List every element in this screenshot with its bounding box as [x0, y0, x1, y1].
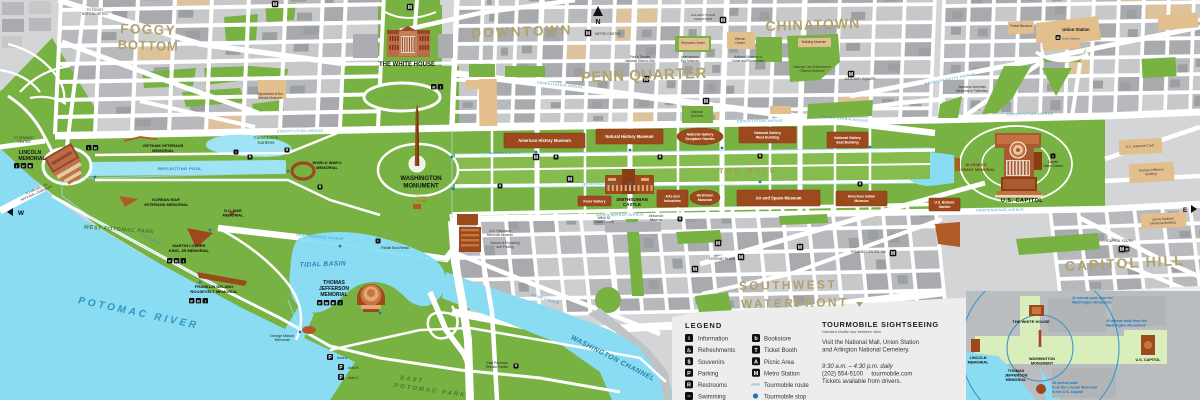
svg-text:i: i	[340, 301, 341, 305]
svg-text:MEMORIAL: MEMORIAL	[152, 148, 174, 153]
svg-text:M: M	[693, 267, 697, 273]
svg-text:M: M	[586, 31, 590, 37]
svg-text:LINCOLN: LINCOLN	[970, 356, 987, 360]
svg-text:M: M	[568, 177, 572, 183]
svg-text:R: R	[197, 299, 200, 303]
svg-text:R: R	[332, 301, 335, 305]
svg-text:CHINATOWN: CHINATOWN	[765, 15, 860, 34]
svg-text:Area A: Area A	[337, 356, 348, 360]
svg-text:Archives: Archives	[691, 114, 704, 118]
svg-text:ULYSSES S: ULYSSES S	[966, 163, 987, 167]
svg-text:THE WHITE HOUSE: THE WHITE HOUSE	[1012, 319, 1050, 324]
svg-text:FOGGY: FOGGY	[120, 21, 176, 38]
svg-text:10 minute walk from the: 10 minute walk from the	[1072, 296, 1113, 300]
svg-text:BOTTOM: BOTTOM	[117, 37, 178, 54]
svg-text:U.S. CAPITOL: U.S. CAPITOL	[1135, 358, 1161, 362]
svg-text:MEMORIAL: MEMORIAL	[223, 214, 244, 218]
svg-text:Freer Gallery: Freer Gallery	[583, 199, 605, 203]
svg-text:Service Center: Service Center	[486, 365, 509, 369]
svg-text:M: M	[1126, 247, 1129, 251]
svg-text:R: R	[94, 146, 97, 150]
svg-text:(202) 554-5100 tourmobile.: (202) 554-5100 tourmobile.com	[822, 372, 912, 378]
svg-text:R: R	[687, 383, 691, 389]
svg-text:MEMORIAL: MEMORIAL	[316, 165, 338, 170]
svg-text:M: M	[754, 371, 759, 377]
svg-text:Washington Monument: Washington Monument	[1072, 301, 1112, 305]
svg-text:TRAINING CENTER SW: TRAINING CENTER SW	[850, 250, 885, 254]
svg-text:Memorial Museum: Memorial Museum	[487, 233, 514, 237]
svg-text:U.S. CAPITOL: U.S. CAPITOL	[1001, 198, 1043, 204]
svg-text:Garden: Garden	[939, 205, 951, 209]
svg-text:CONSTITUTION AVENUE: CONSTITUTION AVENUE	[1007, 112, 1054, 117]
svg-text:CASTLE: CASTLE	[623, 202, 641, 207]
svg-text:Parking: Parking	[698, 371, 718, 377]
svg-text:Theater: Theater	[416, 199, 428, 203]
svg-text:D.C. WAR: D.C. WAR	[224, 209, 242, 213]
svg-text:METRO CENTER: METRO CENTER	[595, 32, 621, 36]
svg-text:9:30 a.m. – 4:30 p.m. daily: 9:30 a.m. – 4:30 p.m. daily	[822, 364, 894, 370]
svg-text:Memorial: Memorial	[275, 338, 290, 342]
svg-text:E: E	[1183, 207, 1188, 214]
svg-text:Postal Museum: Postal Museum	[1010, 24, 1032, 28]
svg-text:P: P	[22, 164, 25, 168]
svg-text:INDEPENDENCE AVENUE: INDEPENDENCE AVENUE	[976, 208, 1024, 213]
svg-text:TOURMOBILE SIGHTSEEING: TOURMOBILE SIGHTSEEING	[822, 320, 939, 329]
svg-text:M: M	[273, 2, 277, 8]
svg-text:P: P	[318, 301, 321, 305]
svg-text:Museum: Museum	[698, 198, 712, 202]
svg-text:West Building: West Building	[756, 135, 779, 139]
svg-text:i: i	[1053, 154, 1054, 158]
svg-text:MEMORIAL: MEMORIAL	[320, 292, 347, 298]
svg-text:MEMORIAL: MEMORIAL	[968, 361, 989, 365]
svg-text:M: M	[704, 99, 708, 105]
svg-text:A: A	[754, 359, 758, 365]
svg-text:to the U.S. Capitol: to the U.S. Capitol	[1052, 390, 1083, 394]
svg-text:45 minute walk: 45 minute walk	[1052, 381, 1078, 385]
svg-text:East Building: East Building	[836, 140, 858, 144]
svg-text:BOTTOM METRO: BOTTOM METRO	[82, 12, 108, 16]
svg-text:MEMORIAL: MEMORIAL	[1006, 378, 1027, 382]
svg-text:Union Station: Union Station	[1062, 37, 1080, 41]
svg-text:CONSTITUTION AVENUE: CONSTITUTION AVENUE	[737, 119, 784, 124]
svg-text:M: M	[325, 301, 328, 305]
svg-text:Restrooms: Restrooms	[698, 383, 727, 389]
svg-text:Tourmobile stop: Tourmobile stop	[764, 395, 807, 400]
svg-text:WASHINGTON: WASHINGTON	[1029, 357, 1055, 361]
svg-text:MONUMENT: MONUMENT	[1031, 362, 1054, 366]
svg-text:INDEPENDENCE AVENUE: INDEPENDENCE AVENUE	[596, 213, 644, 218]
svg-text:CHINATOWN: CHINATOWN	[694, 17, 712, 21]
svg-text:M: M	[739, 255, 743, 261]
svg-text:L’ENFANT PLAZA: L’ENFANT PLAZA	[709, 257, 736, 261]
svg-text:M: M	[716, 241, 720, 247]
svg-text:GRANT MEMORIAL: GRANT MEMORIAL	[960, 168, 996, 172]
svg-text:American History Museum: American History Museum	[518, 138, 571, 143]
svg-text:ROOSEVELT MEMORIAL: ROOSEVELT MEMORIAL	[190, 289, 238, 294]
svg-text:THE WHITE HOUSE: THE WHITE HOUSE	[379, 62, 435, 68]
svg-text:~: ~	[687, 394, 690, 400]
svg-text:Center: Center	[735, 41, 746, 45]
svg-text:Narrated shuttle tour between: Narrated shuttle tour between sites	[822, 330, 881, 334]
svg-text:i: i	[16, 164, 17, 168]
svg-text:i: i	[440, 85, 441, 89]
svg-text:WASHINGTON: WASHINGTON	[400, 176, 441, 182]
svg-text:and Printing: and Printing	[496, 245, 513, 249]
svg-text:i: i	[236, 150, 237, 154]
svg-text:JEFFERSON: JEFFERSON	[1005, 374, 1028, 378]
svg-text:M: M	[798, 245, 802, 251]
svg-text:Carter Gallery: Carter Gallery	[594, 220, 614, 224]
svg-text:Visitor Center: Visitor Center	[1043, 164, 1064, 168]
svg-text:VETERANS MEMORIAL: VETERANS MEMORIAL	[144, 202, 189, 207]
svg-text:National Historic Site: National Historic Site	[625, 59, 655, 63]
svg-text:M: M	[891, 251, 895, 257]
svg-text:M: M	[721, 18, 725, 24]
svg-text:R: R	[29, 164, 32, 168]
svg-text:Paddle Boat Rental: Paddle Boat Rental	[381, 246, 409, 250]
svg-text:THE MALL: THE MALL	[719, 165, 777, 175]
svg-text:Memorial to Patriotism: Memorial to Patriotism	[956, 89, 988, 93]
svg-text:i: i	[88, 146, 89, 150]
svg-text:M: M	[534, 155, 538, 161]
svg-text:REFLECTING POOL: REFLECTING POOL	[158, 166, 202, 171]
svg-text:M: M	[1057, 36, 1060, 40]
svg-text:and Arlington National Cemeter: and Arlington National Cemetery.	[822, 348, 910, 354]
svg-text:Metro Station: Metro Station	[764, 371, 800, 377]
svg-text:Museum: Museum	[854, 199, 868, 203]
svg-text:THOMAS: THOMAS	[1008, 369, 1025, 373]
svg-text:LEGEND: LEGEND	[685, 321, 722, 330]
svg-text:R: R	[432, 85, 435, 89]
svg-text:♨: ♨	[687, 347, 692, 354]
svg-text:Air and Space Museum: Air and Space Museum	[755, 196, 801, 201]
svg-text:MADISON DRIVE: MADISON DRIVE	[489, 151, 521, 156]
svg-text:Reynolds Center: Reynolds Center	[681, 41, 706, 45]
svg-text:Bookstore: Bookstore	[764, 337, 792, 343]
svg-text:JUDICIARY SQUARE: JUDICIARY SQUARE	[844, 77, 875, 81]
svg-text:CAPITOL SOUTH: CAPITOL SOUTH	[1107, 239, 1133, 243]
svg-text:Museum: Museum	[650, 218, 663, 222]
svg-text:Industries: Industries	[664, 199, 681, 203]
svg-text:ELLIPSE: ELLIPSE	[385, 94, 419, 101]
svg-text:Ticket Booth: Ticket Booth	[764, 348, 797, 354]
svg-text:Visit the National Mall, Union: Visit the National Mall, Union Station	[822, 340, 919, 346]
svg-text:i: i	[183, 259, 184, 263]
svg-text:20 minute walk from the: 20 minute walk from the	[1106, 319, 1147, 323]
svg-text:MONUMENT: MONUMENT	[403, 184, 439, 190]
svg-text:Area B: Area B	[348, 366, 359, 370]
svg-text:Union Station: Union Station	[1062, 27, 1090, 32]
svg-text:i: i	[205, 299, 206, 303]
svg-text:Information: Information	[698, 337, 728, 343]
svg-text:MEMORIAL: MEMORIAL	[18, 156, 45, 162]
svg-text:M: M	[408, 5, 412, 11]
svg-text:Tourmobile route: Tourmobile route	[764, 383, 809, 389]
svg-text:P: P	[168, 259, 171, 263]
svg-text:Officers Memorial: Officers Memorial	[800, 69, 825, 73]
svg-text:Sculpture Garden: Sculpture Garden	[685, 137, 714, 141]
svg-text:Gardens: Gardens	[258, 140, 276, 145]
svg-text:Washington Monument: Washington Monument	[1106, 324, 1146, 328]
svg-text:CONSTITUTION AVENUE: CONSTITUTION AVENUE	[277, 129, 324, 134]
svg-text:P: P	[687, 371, 691, 377]
svg-text:Building Museum: Building Museum	[802, 40, 827, 44]
svg-text:Crime and Punishment: Crime and Punishment	[732, 59, 765, 63]
svg-text:R: R	[175, 259, 178, 263]
svg-text:JEFFERSON DRIVE: JEFFERSON DRIVE	[582, 182, 619, 187]
svg-text:$: $	[687, 359, 690, 365]
svg-text:SOUTHWEST: SOUTHWEST	[739, 277, 837, 293]
svg-text:Area C: Area C	[348, 376, 359, 380]
svg-text:CENTER: CENTER	[17, 140, 31, 144]
svg-text:Spy Museum: Spy Museum	[681, 59, 700, 63]
svg-text:Tickets available from drivers: Tickets available from drivers.	[822, 379, 901, 385]
svg-text:WATERFRONT: WATERFRONT	[741, 295, 849, 311]
svg-text:W: W	[18, 210, 25, 217]
svg-text:Refreshments: Refreshments	[698, 348, 735, 354]
svg-text:from the Lincoln Memorial: from the Lincoln Memorial	[1052, 386, 1097, 390]
svg-text:N: N	[595, 19, 600, 26]
svg-text:Building: Building	[1145, 172, 1157, 177]
svg-text:P: P	[190, 299, 193, 303]
svg-text:Swimming: Swimming	[698, 395, 726, 400]
svg-text:Interior Museum: Interior Museum	[258, 96, 281, 100]
svg-text:Picnic Area: Picnic Area	[764, 360, 795, 366]
svg-text:Natural History Museum: Natural History Museum	[605, 134, 653, 139]
svg-text:Souvenirs: Souvenirs	[698, 360, 725, 366]
svg-text:KING, JR MEMORIAL: KING, JR MEMORIAL	[169, 248, 210, 253]
svg-text:M: M	[1120, 247, 1124, 253]
